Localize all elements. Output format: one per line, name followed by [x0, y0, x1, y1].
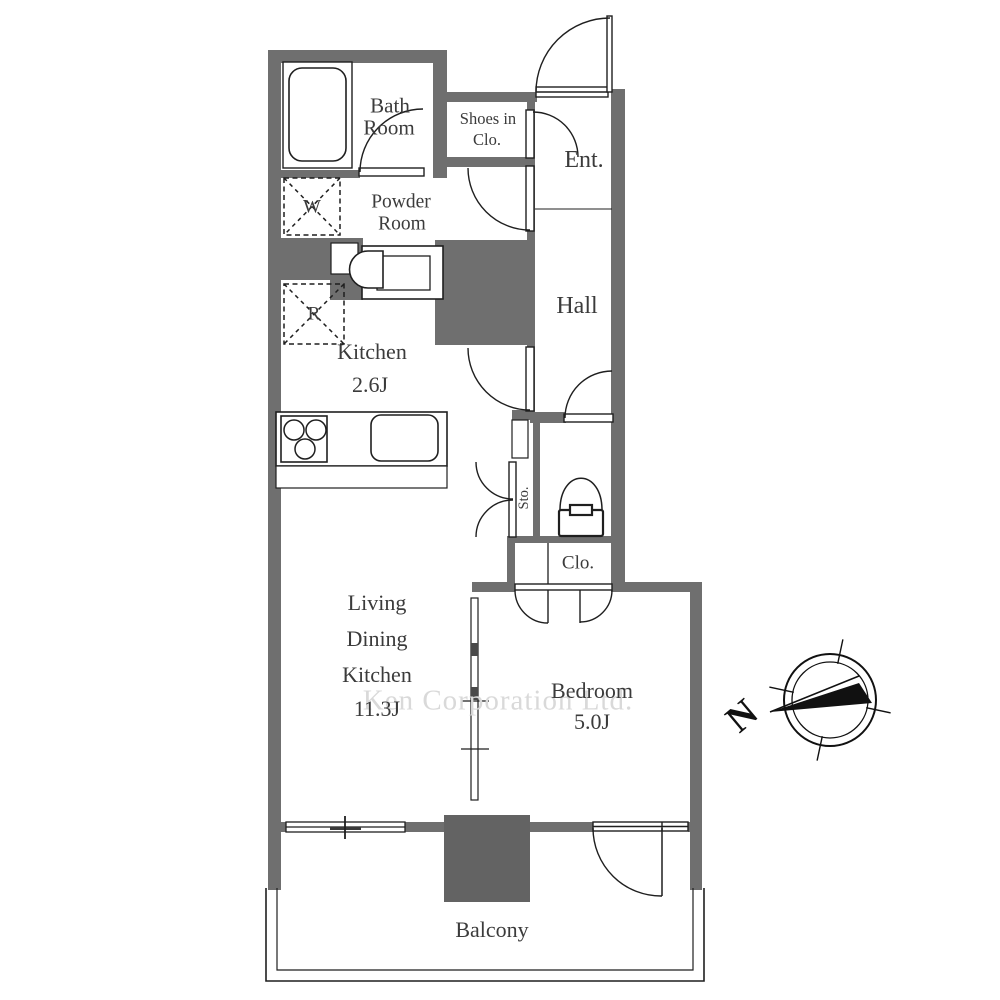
bath-room-label-line2: Room — [363, 118, 414, 139]
ldk-size-label: 11.3J — [354, 698, 400, 720]
shoes-door-leaf — [526, 110, 534, 158]
wall-sto-toilet — [533, 420, 540, 543]
kitchen-counter-front — [276, 466, 447, 488]
ldk-label-line1: Living — [348, 592, 407, 614]
entrance-door-arc — [536, 18, 610, 92]
burner-2 — [306, 420, 326, 440]
wall-shoes-bottom — [447, 157, 535, 167]
wall-bath-bottom — [281, 170, 360, 178]
wall-shoes-top — [435, 92, 537, 102]
ldk-label-line2: Dining — [346, 628, 407, 650]
bath-door-leaf — [359, 168, 424, 176]
powder-room-label-line2: Room — [378, 214, 426, 234]
kitchen-size-label: 2.6J — [352, 374, 388, 396]
hall-label: Hall — [556, 294, 597, 318]
compass — [756, 626, 903, 773]
entrance-door-leaf — [607, 16, 612, 92]
wall-bath-shoes-vertical — [433, 63, 447, 178]
powder-room-label-line1: Powder — [371, 192, 431, 212]
wall-balcony-seg4 — [688, 822, 702, 832]
toilet-door-arc — [565, 371, 612, 418]
bathtub — [289, 68, 346, 161]
wall-right-upper — [611, 89, 625, 592]
partition-panel-mark-1 — [471, 643, 478, 656]
burner-3 — [295, 439, 315, 459]
powder-door-arc — [468, 168, 530, 230]
sto-door-arc-top — [476, 462, 513, 499]
toilet-door-leaf — [564, 414, 613, 422]
shoes-closet-label-line1: Shoes in — [460, 111, 516, 128]
sto-door-arc-bottom — [476, 500, 513, 537]
floorplan-linework — [0, 0, 1000, 1000]
floorplan-canvas: Ken Corporation Ltd. Bath Room Shoes in … — [0, 0, 1000, 1000]
bedroom-balcony-door-arc — [593, 828, 662, 896]
vanity-inner — [377, 256, 430, 290]
bath-room-label-line1: Bath — [370, 96, 410, 117]
washer-marker-label: W — [303, 198, 321, 217]
kitchen-sink — [371, 415, 438, 461]
wall-balcony-seg2 — [405, 822, 444, 832]
burner-1 — [284, 420, 304, 440]
entrance-label: Ent. — [564, 148, 603, 172]
structural-pillar — [444, 815, 530, 902]
wall-top-left — [268, 50, 435, 63]
powder-door-leaf — [526, 166, 534, 231]
vanity-basin — [350, 251, 384, 288]
closet-door-arc-right — [580, 590, 612, 622]
wall-bedroom-top-stub — [472, 582, 515, 592]
wall-bedroom-top-right — [611, 582, 702, 592]
shoes-closet-label-line2: Clo. — [473, 132, 501, 149]
storage-label: Sto. — [517, 487, 532, 510]
wall-balcony-seg1 — [268, 822, 287, 832]
kitchen-door-leaf — [526, 347, 534, 411]
toilet-tank-notch — [570, 505, 592, 515]
closet-label: Clo. — [562, 554, 594, 573]
bedroom-label: Bedroom — [551, 680, 633, 702]
closet-sill — [515, 584, 612, 590]
bedroom-size-label: 5.0J — [574, 711, 610, 733]
wall-bedroom-right — [690, 588, 702, 890]
closet-door-arc-left — [515, 590, 548, 623]
ldk-label-line3: Kitchen — [342, 664, 412, 686]
sto-upper-panel — [512, 420, 528, 458]
wall-balcony-seg3 — [530, 822, 593, 832]
kitchen-label: Kitchen — [337, 341, 407, 363]
kitchen-door-arc — [468, 348, 530, 410]
pipe-shaft — [435, 240, 533, 345]
fridge-marker-label: R — [308, 305, 321, 324]
balcony-label: Balcony — [455, 919, 528, 941]
